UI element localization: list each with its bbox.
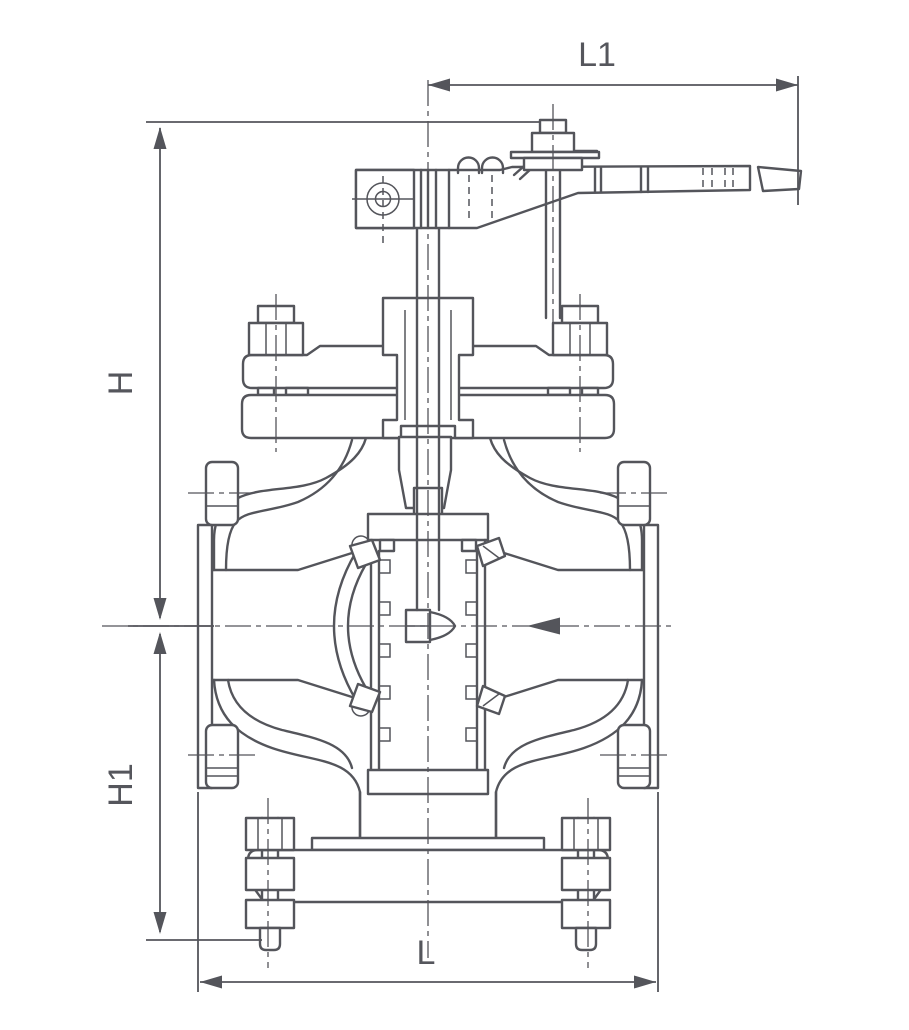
dim-label-l: L — [417, 934, 436, 972]
valve-technical-drawing: L1 H H1 L — [0, 0, 909, 1030]
dimension-arrowhead — [154, 632, 167, 654]
dimension-arrowhead — [154, 127, 167, 149]
technical-drawing-page: L1 H H1 L — [0, 0, 909, 1030]
dimension-arrowhead — [428, 79, 450, 92]
lever-assembly — [352, 120, 801, 318]
dim-label-l1: L1 — [578, 36, 616, 74]
dim-label-h1: H1 — [102, 763, 140, 806]
dimension-arrowhead — [634, 976, 656, 989]
hex-nut — [246, 818, 294, 850]
right-flange — [618, 462, 658, 788]
right-flange-bottom-lug — [618, 725, 650, 788]
bottom-stud-right — [562, 818, 610, 950]
body-upper-right-inner — [504, 440, 630, 570]
dim-label-h: H — [102, 371, 140, 396]
left-flange — [198, 462, 238, 788]
flow-direction-arrow — [527, 618, 560, 635]
disc-cap-top — [350, 540, 380, 568]
left-flange-bottom-lug — [206, 725, 238, 788]
link-rod — [511, 120, 599, 318]
dimension-arrowhead — [154, 598, 167, 620]
stud-tip — [260, 928, 280, 950]
dimension-arrowhead — [776, 79, 798, 92]
hex-nut — [246, 858, 294, 890]
hex-nut — [562, 858, 610, 890]
hex-nut — [246, 900, 294, 928]
stud-tip — [576, 928, 596, 950]
body-upper-left-inner — [226, 440, 352, 570]
lever-handle-grip — [758, 167, 801, 191]
cage-cap-foot-left — [380, 540, 394, 551]
neck-top-left — [212, 553, 352, 570]
cage-cap-foot-right — [462, 540, 476, 551]
dimension-arrowhead — [200, 976, 222, 989]
hex-nut — [562, 818, 610, 850]
bottom-stud-left — [246, 818, 294, 950]
disc-cap-bottom — [350, 684, 380, 712]
dimension-arrowhead — [154, 912, 167, 934]
hex-nut — [562, 900, 610, 928]
neck-top-right — [504, 553, 644, 570]
